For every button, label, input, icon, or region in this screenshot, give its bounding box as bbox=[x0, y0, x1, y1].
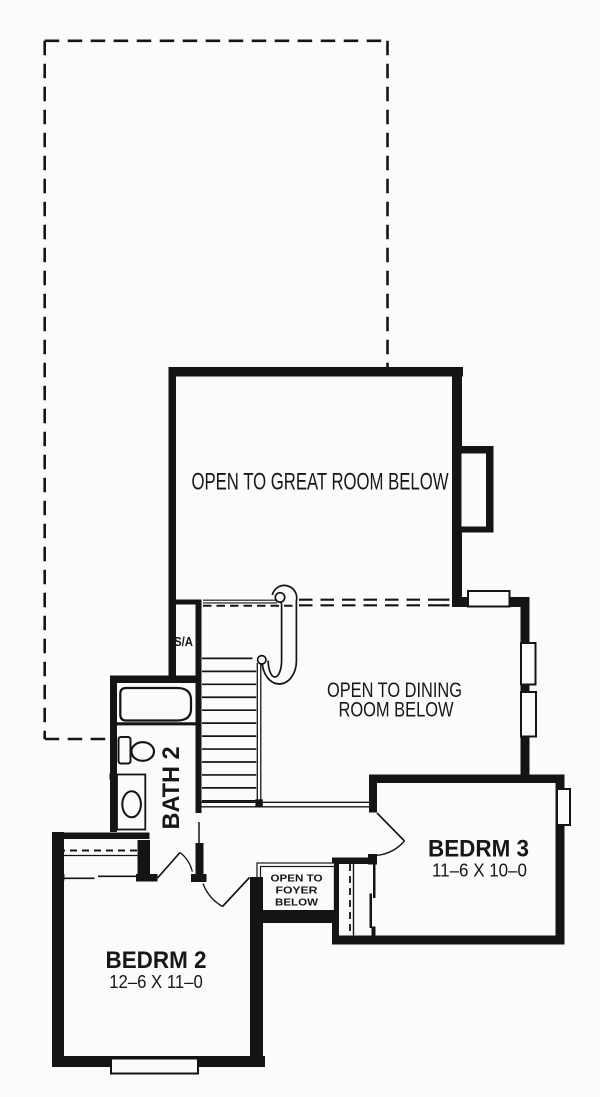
svg-text:OPEN TO GREAT ROOM BELOW: OPEN TO GREAT ROOM BELOW bbox=[192, 469, 449, 496]
svg-text:11–6 X 10–0: 11–6 X 10–0 bbox=[432, 860, 527, 881]
svg-text:12–6 X 11–0: 12–6 X 11–0 bbox=[109, 971, 203, 992]
svg-text:OPEN TO: OPEN TO bbox=[271, 873, 323, 884]
svg-text:BATH 2: BATH 2 bbox=[158, 747, 185, 830]
svg-text:S/A: S/A bbox=[174, 635, 193, 649]
svg-text:ROOM BELOW: ROOM BELOW bbox=[339, 698, 454, 721]
svg-text:BELOW: BELOW bbox=[275, 897, 318, 908]
svg-text:BEDRM 3: BEDRM 3 bbox=[428, 836, 529, 863]
svg-text:FOYER: FOYER bbox=[276, 885, 319, 896]
svg-text:BEDRM 2: BEDRM 2 bbox=[106, 947, 207, 974]
